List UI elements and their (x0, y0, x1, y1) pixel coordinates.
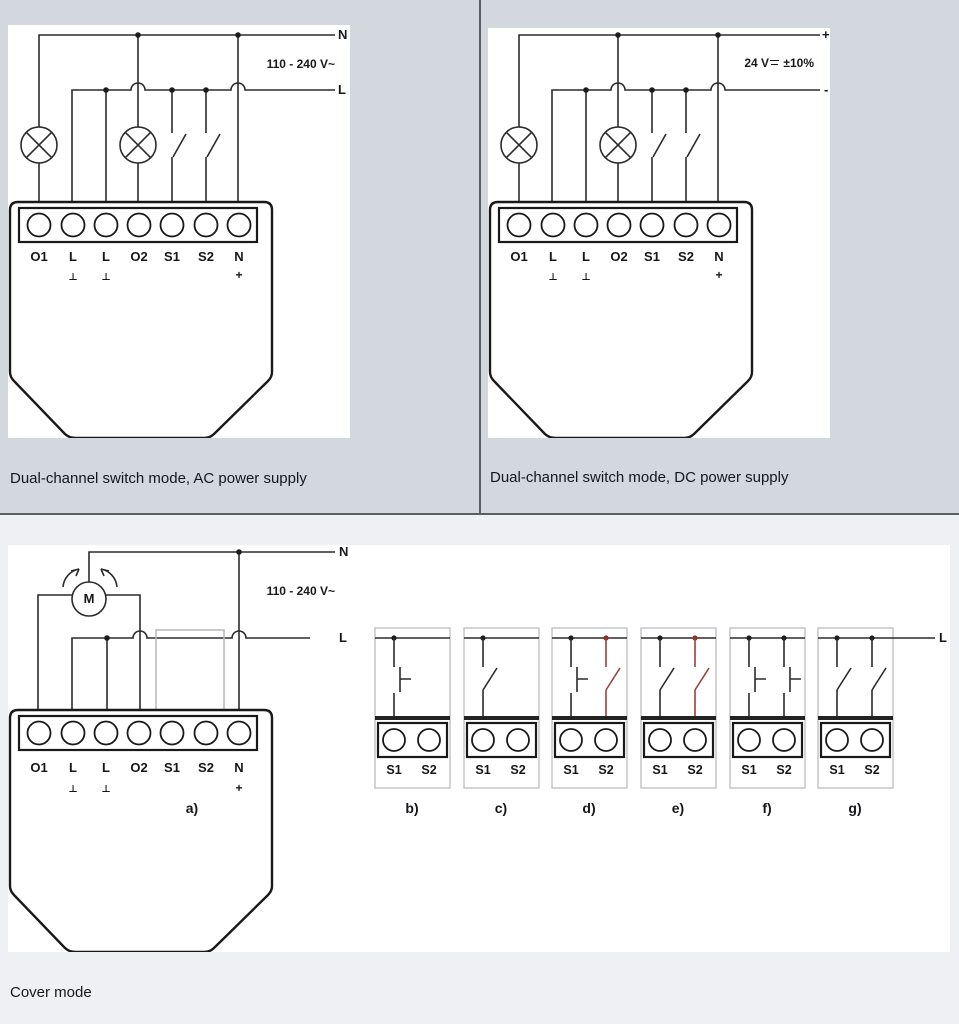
terminal-label-s1: S1 (164, 249, 180, 264)
terminal-label-o1: O1 (510, 249, 527, 264)
plus-symbol: + (235, 269, 242, 282)
terminal-label-n: N (714, 249, 723, 264)
terminal-label-l1: L (69, 760, 77, 775)
subpanel-b-s1-label: S1 (386, 763, 401, 778)
subpanel-l-line-label: L (939, 631, 947, 645)
dc-voltage-value: 24 V (744, 56, 769, 70)
horizontal-divider (0, 513, 959, 515)
ac-wiring-graphic (8, 25, 350, 438)
dc-lamp-icons (501, 127, 636, 163)
ac-lamp-icons (21, 127, 156, 163)
subpanel-g-s1-label: S1 (829, 763, 844, 778)
vertical-divider (479, 0, 481, 513)
dc-minus-line-label: - (824, 83, 828, 97)
subpanel-f-label: f) (762, 801, 771, 816)
dc-voltage-label: 24 V ±10% (724, 56, 814, 70)
motor-label: M (84, 592, 95, 606)
cover-caption: Cover mode (10, 984, 92, 1001)
ac-junction-dots (103, 32, 241, 93)
cover-neutral-line-label: N (339, 545, 348, 559)
subpanel-g-label: g) (848, 801, 861, 816)
terminal-label-s2: S2 (678, 249, 694, 264)
dc-current-icon (770, 59, 779, 67)
subpanel-e-s1-label: S1 (652, 763, 667, 778)
option-a-label: a) (186, 801, 198, 816)
subpanel-e-s2-label: S2 (687, 763, 702, 778)
cover-live-line-label: L (339, 631, 347, 645)
cover-mode-panel: N 110 - 240 V~ L M O1 L L O2 S1 S2 N ⊥ ⊥… (8, 545, 950, 952)
subpanel-f-s2-label: S2 (776, 763, 791, 778)
subpanel-f-s1-label: S1 (741, 763, 756, 778)
terminal-label-s1: S1 (164, 760, 180, 775)
wiring-diagrams-page: N 110 - 240 V~ L O1 L L O2 S1 S2 N ⊥ ⊥ +… (0, 0, 959, 1024)
ground-symbol: ⊥ (548, 272, 557, 284)
dc-caption: Dual-channel switch mode, DC power suppl… (490, 469, 788, 486)
ac-live-line-label: L (338, 83, 346, 97)
subpanel-e-label: e) (672, 801, 684, 816)
subpanel-c-s2-label: S2 (510, 763, 525, 778)
terminal-label-o1: O1 (30, 760, 47, 775)
terminal-label-s2: S2 (198, 249, 214, 264)
subpanel-c-label: c) (495, 801, 507, 816)
terminal-label-l2: L (102, 249, 110, 264)
terminal-label-o2: O2 (610, 249, 627, 264)
ground-symbol: ⊥ (101, 784, 110, 796)
dc-voltage-tolerance: ±10% (783, 56, 814, 70)
terminal-label-o2: O2 (130, 249, 147, 264)
subpanel-d-s2-label: S2 (598, 763, 613, 778)
terminal-label-o1: O1 (30, 249, 47, 264)
ac-neutral-line-label: N (338, 28, 347, 42)
subpanel-c-s1-label: S1 (475, 763, 490, 778)
ac-wiring-panel: N 110 - 240 V~ L O1 L L O2 S1 S2 N ⊥ ⊥ + (8, 25, 350, 438)
dc-device-body (490, 202, 752, 438)
ground-symbol: ⊥ (581, 272, 590, 284)
subpanel-d-label: d) (582, 801, 595, 816)
terminal-label-s1: S1 (644, 249, 660, 264)
ground-symbol: ⊥ (68, 272, 77, 284)
terminal-label-n: N (234, 249, 243, 264)
terminal-label-l1: L (549, 249, 557, 264)
cover-wiring-graphic (8, 545, 950, 952)
plus-symbol: + (235, 782, 242, 795)
ac-voltage-label: 110 - 240 V~ (251, 57, 335, 71)
terminal-label-l2: L (582, 249, 590, 264)
terminal-label-o2: O2 (130, 760, 147, 775)
cover-main-wires (38, 552, 335, 710)
ac-caption: Dual-channel switch mode, AC power suppl… (10, 470, 307, 487)
subpanel-g-s2-label: S2 (864, 763, 879, 778)
terminal-label-l2: L (102, 760, 110, 775)
dc-junction-dots (583, 32, 721, 93)
cover-device-body (10, 710, 272, 952)
plus-symbol: + (715, 269, 722, 282)
ac-device-body (10, 202, 272, 438)
ground-symbol: ⊥ (101, 272, 110, 284)
dc-wiring-panel: + 24 V ±10% - O1 L L O2 S1 S2 N ⊥ ⊥ + (488, 28, 830, 438)
subpanel-d-s1-label: S1 (563, 763, 578, 778)
terminal-label-n: N (234, 760, 243, 775)
subpanel-b-s2-label: S2 (421, 763, 436, 778)
terminal-label-s2: S2 (198, 760, 214, 775)
subpanel-b-label: b) (405, 801, 418, 816)
cover-voltage-label: 110 - 240 V~ (251, 584, 335, 598)
dc-plus-line-label: + (822, 28, 830, 42)
terminal-label-l1: L (69, 249, 77, 264)
ground-symbol: ⊥ (68, 784, 77, 796)
dc-wiring-graphic (488, 28, 830, 438)
